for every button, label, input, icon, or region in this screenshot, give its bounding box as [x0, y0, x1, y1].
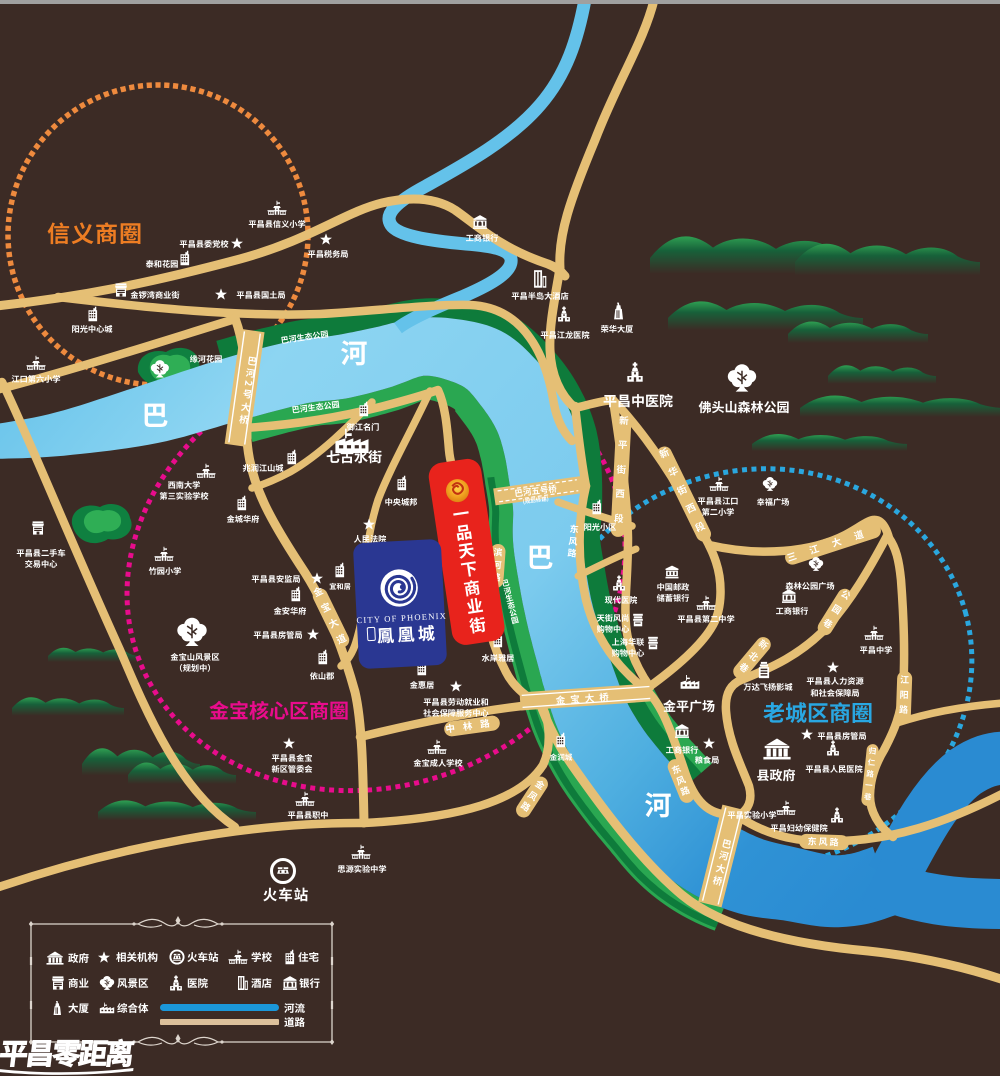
svg-text:和社会保障局: 和社会保障局: [810, 687, 859, 699]
svg-text:购物中心: 购物中心: [597, 623, 631, 635]
svg-text:平昌实验小学: 平昌实验小学: [727, 809, 776, 821]
svg-text:平昌县信义小学: 平昌县信义小学: [248, 218, 305, 230]
svg-text:储蓄银行: 储蓄银行: [657, 592, 690, 604]
svg-text:阳光小区: 阳光小区: [584, 521, 617, 533]
svg-text:商业: 商业: [68, 976, 89, 991]
svg-text:平昌县委党校: 平昌县委党校: [179, 238, 229, 250]
svg-text:工商银行: 工商银行: [466, 232, 499, 244]
svg-text:工商银行: 工商银行: [776, 605, 809, 617]
svg-text:交易中心: 交易中心: [25, 558, 59, 570]
svg-text:竹园小学: 竹园小学: [149, 565, 182, 577]
svg-text:平昌县第二中学: 平昌县第二中学: [677, 613, 734, 625]
svg-text:酒店: 酒店: [251, 976, 272, 991]
svg-text:万达飞扬影城: 万达飞扬影城: [743, 681, 793, 693]
svg-text:平昌妇幼保健院: 平昌妇幼保健院: [770, 822, 827, 834]
svg-text:火车站: 火车站: [187, 950, 219, 965]
svg-text:金锣湾商业街: 金锣湾商业街: [130, 289, 179, 301]
svg-text:依山郡: 依山郡: [310, 670, 335, 682]
svg-text:住宅: 住宅: [298, 950, 319, 965]
svg-text:思源实验中学: 思源实验中学: [337, 863, 386, 875]
svg-text:荣华大厦: 荣华大厦: [601, 323, 634, 335]
svg-text:平昌江龙医院: 平昌江龙医院: [540, 329, 589, 341]
svg-text:江口第六小学: 江口第六小学: [11, 373, 60, 385]
svg-text:平昌中学: 平昌中学: [860, 644, 893, 656]
svg-text:金平广场: 金平广场: [663, 696, 715, 715]
svg-text:风景区: 风景区: [117, 976, 149, 991]
svg-text:平昌县职中: 平昌县职中: [288, 809, 329, 821]
svg-text:医院: 医院: [187, 976, 208, 991]
svg-text:县政府: 县政府: [756, 765, 795, 784]
svg-text:平昌半岛大酒店: 平昌半岛大酒店: [511, 290, 568, 302]
svg-text:平昌县国土局: 平昌县国土局: [236, 289, 285, 301]
svg-text:相关机构: 相关机构: [116, 950, 158, 965]
svg-text:平昌县房管局: 平昌县房管局: [253, 629, 302, 641]
svg-text:第三实验学校: 第三实验学校: [159, 490, 209, 502]
svg-text:巴: 巴: [527, 536, 554, 575]
svg-text:平昌税务局: 平昌税务局: [308, 248, 349, 260]
svg-text:平昌零距离: 平昌零距离: [0, 1031, 136, 1073]
svg-text:平昌县人力资源: 平昌县人力资源: [806, 675, 864, 687]
svg-text:平昌县人民医院: 平昌县人民医院: [805, 763, 862, 775]
svg-text:金安华府: 金安华府: [274, 605, 307, 617]
svg-text:购物中心: 购物中心: [612, 647, 646, 659]
svg-text:道路: 道路: [284, 1015, 305, 1030]
svg-text:大厦: 大厦: [68, 1001, 89, 1016]
svg-text:平昌县房管局: 平昌县房管局: [817, 730, 866, 742]
svg-text:河: 河: [645, 784, 672, 823]
svg-text:社会保障服务中心: 社会保障服务中心: [423, 707, 489, 719]
svg-text:佛头山森林公园: 佛头山森林公园: [698, 397, 789, 416]
svg-text:河: 河: [341, 332, 368, 371]
svg-text:新区管委会: 新区管委会: [272, 763, 313, 775]
svg-text:幸福广场: 幸福广场: [757, 496, 790, 508]
svg-text:缘河花园: 缘河花园: [190, 353, 223, 365]
svg-text:水岸雅居: 水岸雅居: [482, 652, 515, 664]
svg-text:江阳路: 江阳路: [897, 674, 912, 719]
svg-text:粮食局: 粮食局: [695, 754, 720, 766]
svg-text:金润城: 金润城: [550, 752, 573, 763]
svg-text:老城区商圈: 老城区商圈: [763, 696, 873, 728]
svg-text:工商银行: 工商银行: [666, 744, 699, 756]
svg-text:东风路: 东风路: [807, 834, 840, 848]
svg-text:金宝成人学校: 金宝成人学校: [413, 757, 463, 769]
svg-text:金宝核心区商圈: 金宝核心区商圈: [209, 695, 349, 724]
svg-text:森林公园广场: 森林公园广场: [785, 580, 834, 592]
svg-text:政府: 政府: [68, 951, 89, 966]
svg-text:宜和居: 宜和居: [329, 582, 351, 592]
svg-text:学校: 学校: [251, 950, 272, 965]
svg-text:平昌县安监局: 平昌县安监局: [251, 573, 300, 585]
svg-text:七古水街: 七古水街: [326, 447, 382, 467]
svg-text:金惠居: 金惠居: [410, 679, 435, 691]
svg-text:金城华府: 金城华府: [227, 513, 260, 525]
svg-text:现代医院: 现代医院: [605, 594, 638, 606]
svg-text:鳳凰城: 鳳凰城: [376, 619, 439, 647]
svg-text:河流: 河流: [284, 1001, 305, 1016]
svg-text:巴: 巴: [142, 394, 169, 433]
svg-text:阳光中心城: 阳光中心城: [72, 323, 114, 335]
svg-text:御江名门: 御江名门: [347, 421, 380, 433]
svg-text:第二小学: 第二小学: [702, 506, 735, 518]
svg-text:信义商圈: 信义商圈: [47, 215, 143, 249]
svg-text:银行: 银行: [299, 976, 320, 991]
svg-text:兆润江山城: 兆润江山城: [243, 462, 285, 474]
svg-text:中央城邦: 中央城邦: [385, 496, 418, 508]
svg-text:平昌中医院: 平昌中医院: [603, 391, 673, 411]
svg-text:综合体: 综合体: [117, 1001, 149, 1016]
svg-text:火车站: 火车站: [263, 884, 310, 905]
svg-text:泰和花园: 泰和花园: [146, 258, 179, 270]
svg-text:（规划中）: （规划中）: [175, 662, 216, 674]
